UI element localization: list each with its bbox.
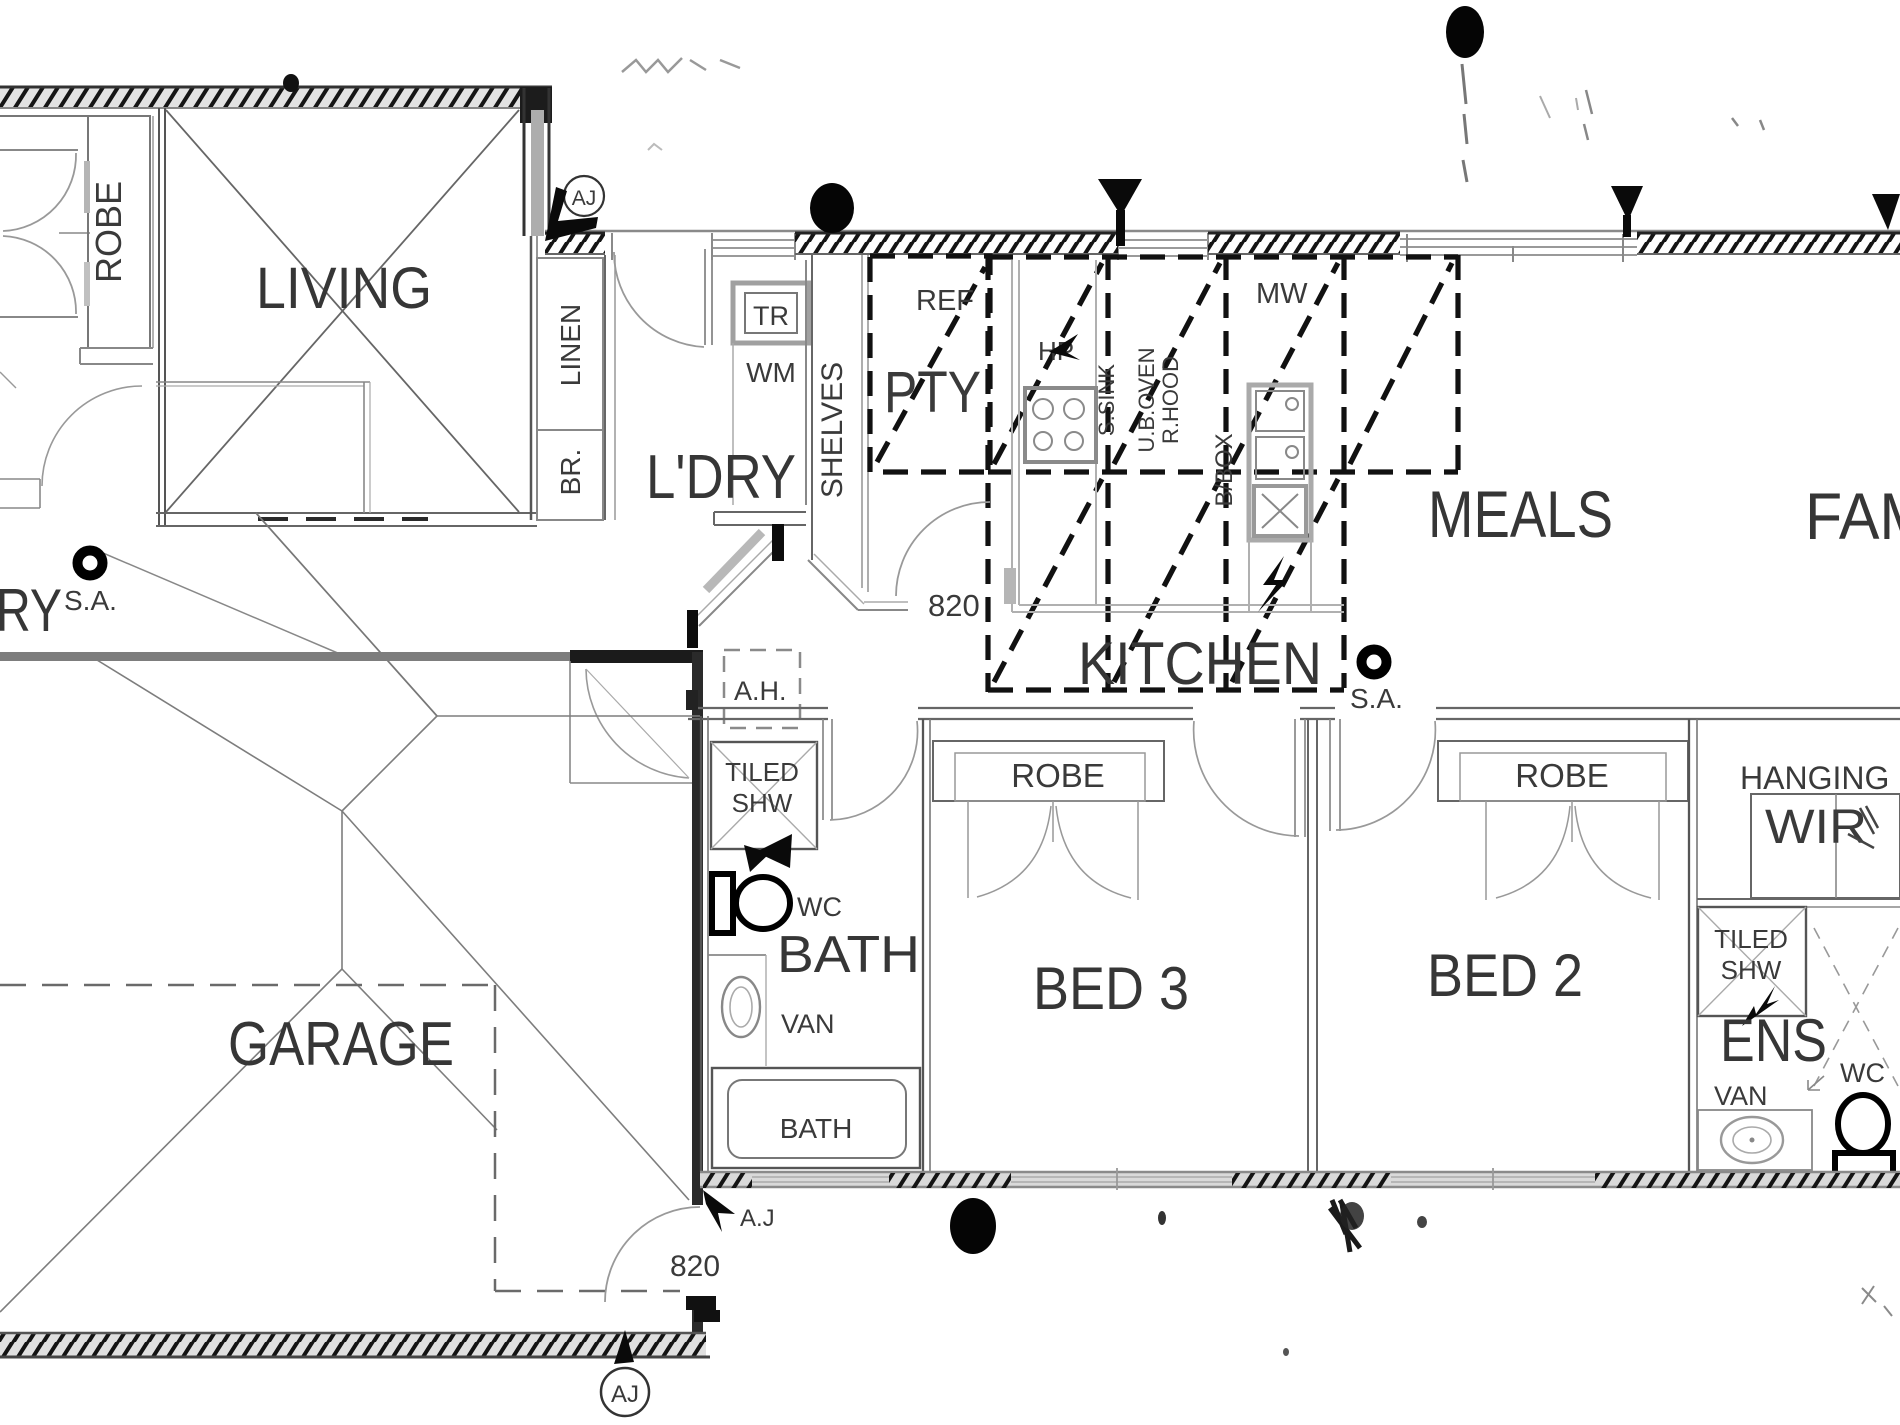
svg-text:RY: RY (0, 577, 62, 644)
svg-text:REF: REF (916, 285, 974, 317)
svg-text:U.B.OVEN: U.B.OVEN (1134, 347, 1159, 452)
svg-text:VAN: VAN (781, 1009, 835, 1039)
svg-text:SHW: SHW (1721, 955, 1782, 985)
svg-text:BED 3: BED 3 (1033, 955, 1189, 1022)
svg-text:HANGING: HANGING (1740, 760, 1889, 796)
svg-text:MEALS: MEALS (1428, 477, 1613, 551)
svg-text:ROBE: ROBE (1515, 757, 1609, 794)
svg-text:VAN: VAN (1714, 1081, 1768, 1111)
svg-text:BATH: BATH (777, 926, 920, 984)
svg-text:SHW: SHW (732, 788, 793, 818)
svg-text:ENS: ENS (1720, 1007, 1827, 1074)
svg-text:BED 2: BED 2 (1427, 942, 1583, 1009)
svg-text:ROBE: ROBE (1011, 757, 1105, 794)
svg-text:BATH: BATH (780, 1113, 853, 1144)
svg-text:B/BOX: B/BOX (1211, 433, 1238, 506)
svg-text:MW: MW (1256, 278, 1308, 310)
svg-text:TILED: TILED (1714, 924, 1788, 954)
svg-text:PTY: PTY (884, 360, 981, 425)
svg-text:WC: WC (797, 892, 842, 922)
svg-text:WM: WM (746, 357, 796, 388)
svg-text:GARAGE: GARAGE (228, 1010, 454, 1079)
svg-text:WC: WC (1840, 1058, 1885, 1088)
svg-text:S.A.: S.A. (64, 585, 117, 616)
svg-text:ROBE: ROBE (88, 181, 129, 283)
svg-text:TR: TR (753, 301, 789, 331)
svg-text:S.SINK: S.SINK (1094, 364, 1119, 436)
svg-text:WIR: WIR (1765, 801, 1867, 854)
svg-text:BR.: BR. (555, 449, 586, 496)
svg-text:LINEN: LINEN (555, 304, 586, 386)
svg-text:LIVING: LIVING (256, 256, 432, 321)
svg-text:A.J: A.J (740, 1205, 775, 1232)
svg-text:L'DRY: L'DRY (646, 443, 796, 512)
svg-text:TILED: TILED (725, 757, 799, 787)
svg-text:S.A.: S.A. (1350, 683, 1403, 714)
svg-text:AJ: AJ (572, 187, 597, 210)
svg-text:AJ: AJ (611, 1381, 639, 1408)
svg-text:R.HOOD: R.HOOD (1158, 356, 1183, 444)
svg-text:820: 820 (928, 588, 980, 623)
svg-text:SHELVES: SHELVES (816, 362, 849, 498)
svg-text:A.H.: A.H. (734, 676, 787, 706)
svg-text:KITCHEN: KITCHEN (1078, 630, 1322, 697)
svg-text:820: 820 (670, 1250, 720, 1283)
svg-text:FAMILY: FAMILY (1805, 479, 1900, 553)
